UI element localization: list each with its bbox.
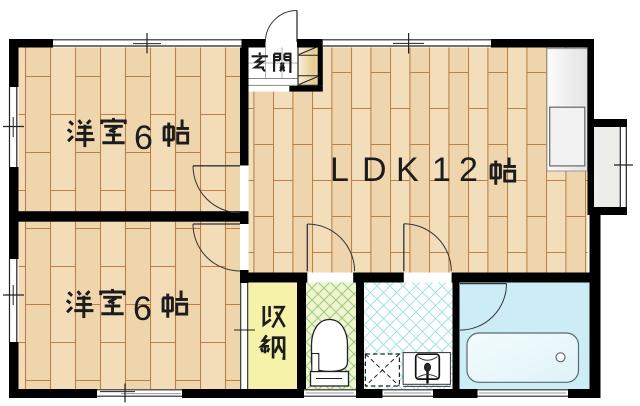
svg-text:D: D: [362, 151, 387, 189]
svg-text:6: 6: [134, 119, 153, 157]
svg-text:6: 6: [133, 290, 152, 328]
svg-text:1: 1: [432, 151, 451, 189]
svg-text:K: K: [396, 151, 419, 189]
svg-text:2: 2: [459, 151, 478, 189]
svg-text:L: L: [330, 151, 349, 189]
